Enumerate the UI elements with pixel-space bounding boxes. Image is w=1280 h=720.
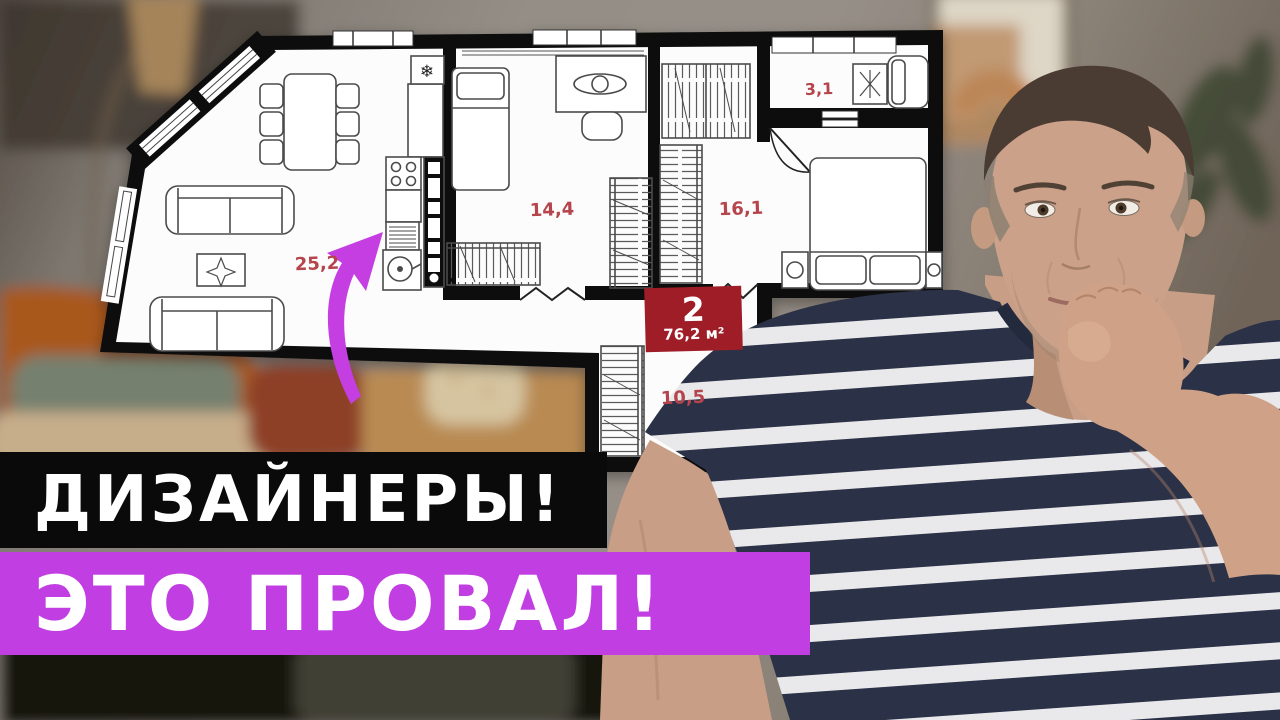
single-bed bbox=[452, 68, 509, 190]
nightstand-right bbox=[926, 252, 942, 288]
wardrobe-left bbox=[660, 145, 702, 283]
area-badge: 2 76,2 м² bbox=[644, 286, 743, 353]
desk-chair bbox=[582, 112, 622, 140]
title-banner-top: ДИЗАЙНЕРЫ! bbox=[0, 452, 607, 548]
total-area: 76,2 м² bbox=[663, 324, 725, 344]
wardrobe-top bbox=[662, 64, 750, 138]
double-bed bbox=[810, 158, 926, 290]
room-label-bedroom2: 16,1 bbox=[718, 198, 763, 221]
wardrobe-bottom bbox=[447, 243, 540, 285]
nightstand-left bbox=[782, 252, 808, 288]
sofa-bottom bbox=[150, 297, 284, 351]
snowflake-vent-icon: ❄ bbox=[420, 62, 434, 82]
title-line-1: ДИЗАЙНЕРЫ! bbox=[34, 463, 563, 537]
title-line-2: ЭТО ПРОВАЛ! bbox=[34, 559, 664, 648]
thumbnail: ❄ bbox=[0, 0, 1280, 720]
rooms-count: 2 bbox=[681, 295, 705, 326]
balcony-bench bbox=[888, 56, 928, 108]
kitchen-dishwasher bbox=[386, 222, 419, 250]
hallway-wardrobe bbox=[601, 346, 644, 456]
balcony-table bbox=[853, 64, 887, 104]
coffee-table bbox=[197, 254, 245, 286]
room-label-bedroom1: 14,4 bbox=[529, 199, 574, 222]
room-label-balcony: 3,1 bbox=[805, 79, 834, 99]
kitchen-sink bbox=[383, 250, 421, 290]
room-label-hallway: 10,5 bbox=[660, 387, 705, 410]
room-label-living: 25,2 bbox=[294, 253, 339, 276]
kitchen-stove bbox=[386, 157, 421, 222]
sofa-top bbox=[166, 186, 294, 234]
dining-table bbox=[284, 74, 336, 170]
title-banner-bottom: ЭТО ПРОВАЛ! bbox=[0, 552, 810, 655]
kitchen-tall-cabinet bbox=[424, 157, 444, 287]
wardrobe-right bbox=[610, 178, 652, 288]
